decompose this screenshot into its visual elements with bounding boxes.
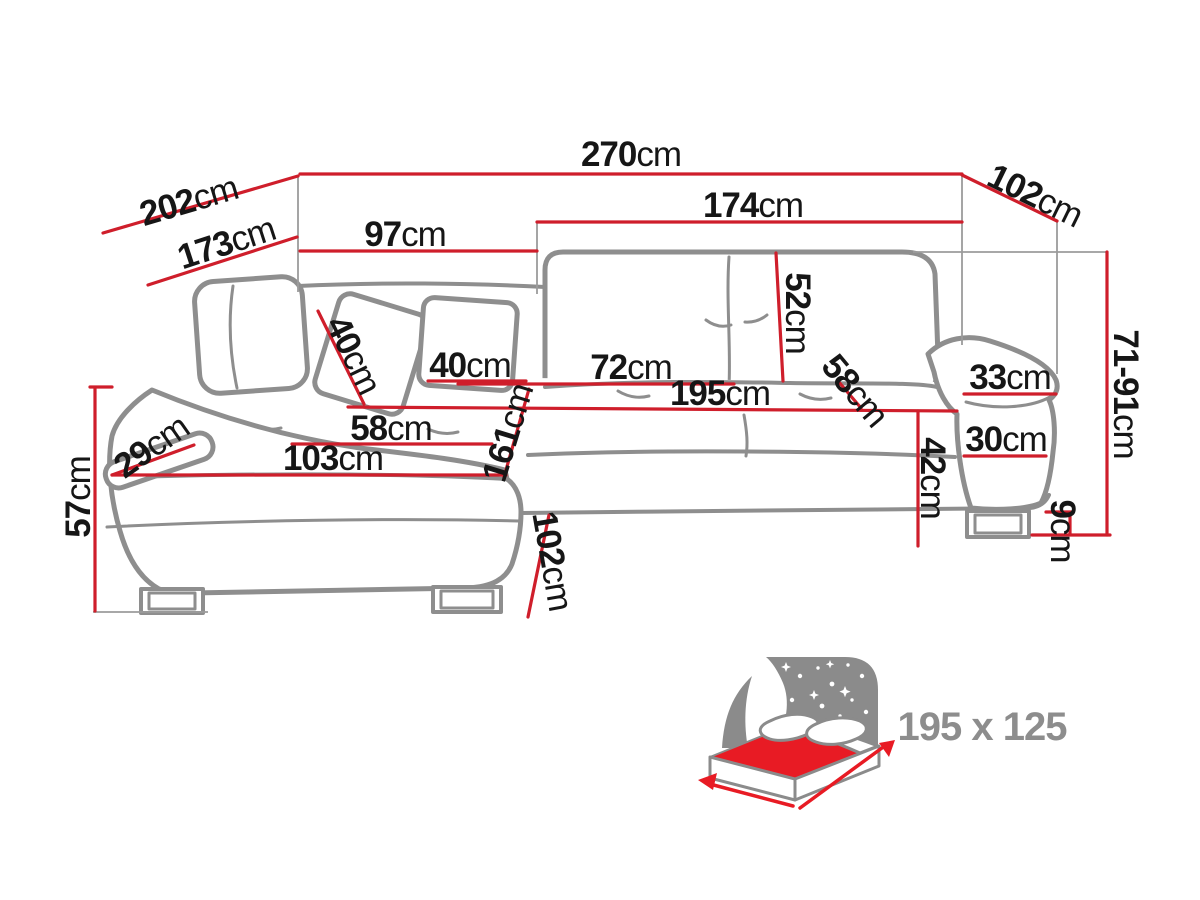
dim-57-label: 57cm: [59, 456, 98, 538]
dim-52-label: 52cm: [778, 272, 817, 354]
dim-40-pillow-right-label: 40cm: [429, 346, 511, 385]
sofa-drawing: [102, 252, 1057, 613]
dim-174-label: 174cm: [703, 186, 803, 225]
dim-103-label: 103cm: [283, 439, 383, 478]
dim-270-label: 270cm: [581, 135, 681, 174]
sofa-headrest: [193, 275, 309, 394]
sofa-back-edge: [298, 283, 545, 287]
dim-102-side-label: 102cm: [982, 156, 1089, 235]
sofa-foot-left: [141, 589, 203, 613]
dim-195-label: 195cm: [670, 374, 770, 413]
dim-30-label: 30cm: [965, 420, 1047, 459]
dim-97-label: 97cm: [364, 215, 446, 254]
sofa-dimension-diagram: 270cm 202cm 173cm 97cm 174cm 102cm 52cm …: [0, 0, 1200, 900]
dim-9-label: 9cm: [1043, 499, 1082, 562]
bed-size-caption: 195 x 125: [898, 705, 1068, 749]
dim-71-91-label: 71-91cm: [1106, 329, 1145, 458]
moon-crescent-icon: [722, 676, 752, 748]
dim-42-label: 42cm: [913, 437, 952, 519]
diagram-canvas: 270cm 202cm 173cm 97cm 174cm 102cm 52cm …: [0, 0, 1200, 900]
bed-icon: 195 x 125: [0, 657, 1067, 808]
sofa-foot-middle: [433, 587, 501, 612]
dim-33-label: 33cm: [969, 358, 1051, 397]
sofa-backrest-seam: [728, 257, 729, 386]
sofa-foot-right: [967, 511, 1029, 537]
dim-72-label: 72cm: [590, 348, 672, 387]
